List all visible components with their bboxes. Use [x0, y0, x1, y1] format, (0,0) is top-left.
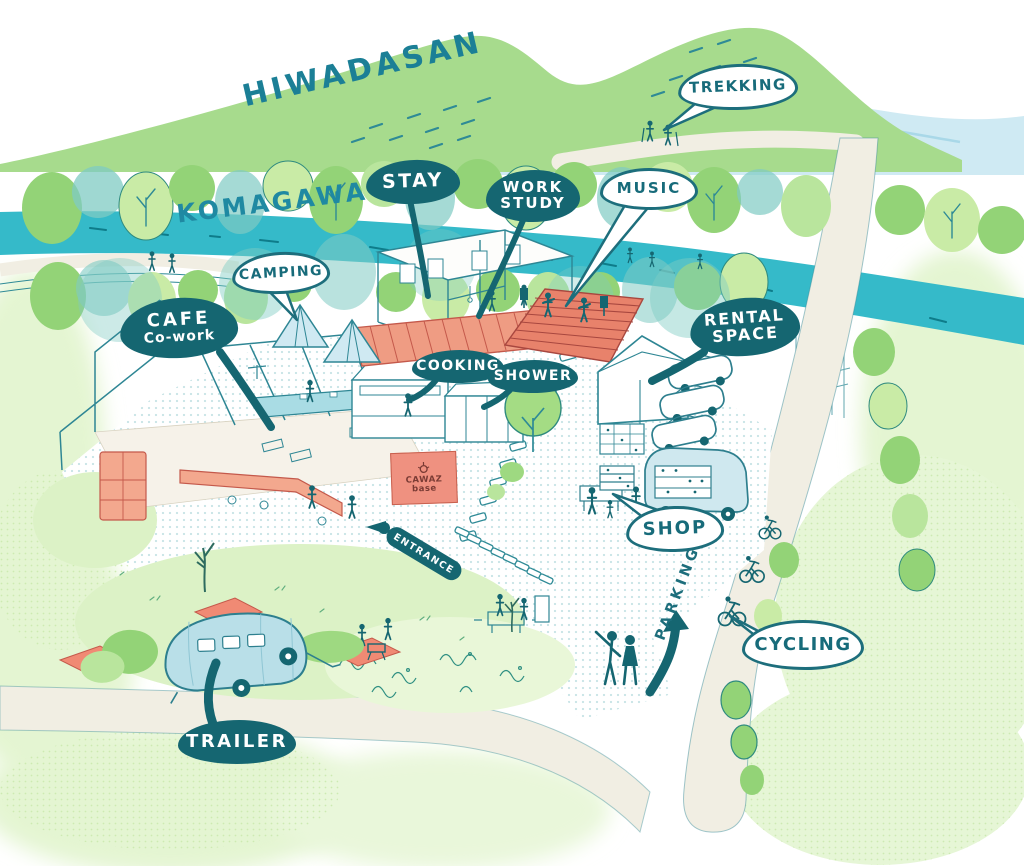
label-study-text: STUDY [500, 196, 565, 212]
cawaz-sign-line2: base [412, 485, 437, 495]
vending-kiosk [535, 596, 549, 622]
label-shower-text: SHOWER [494, 369, 573, 384]
label-shower: SHOWER [488, 360, 578, 393]
label-trailer: TRAILER [178, 720, 296, 764]
label-cycling-text: CYCLING [754, 636, 851, 655]
label-cowork-text: Co-work [143, 328, 215, 346]
label-shop-text: SHOP [642, 518, 707, 539]
label-space-text: SPACE [712, 325, 780, 346]
label-music-text: MUSIC [617, 181, 682, 197]
label-music: MUSIC [600, 168, 698, 210]
label-work-study: WORK STUDY [486, 170, 580, 222]
lightbulb-icon [417, 461, 429, 474]
label-trailer-text: TRAILER [186, 733, 288, 752]
label-trekking-text: TREKKING [689, 77, 787, 96]
label-cooking-text: COOKING [416, 359, 500, 374]
map-illustration [0, 0, 1024, 866]
illustrated-facility-map: HIWADASAN KOMAGAWA PARKING TREKKING STAY… [0, 0, 1024, 866]
label-cycling: CYCLING [742, 620, 864, 670]
cawaz-base-sign: CAWAZ base [390, 451, 458, 505]
label-stay-text: STAY [382, 171, 444, 193]
label-camping-text: CAMPING [239, 263, 324, 282]
